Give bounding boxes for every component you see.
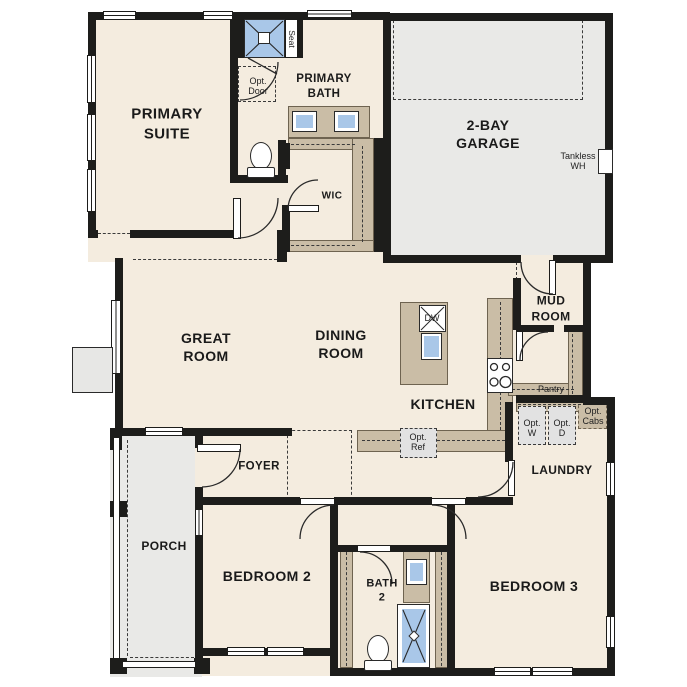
wall bbox=[386, 255, 613, 263]
annotation-dw: DW bbox=[425, 313, 440, 323]
tankless-water-heater bbox=[598, 149, 613, 174]
closet3-rod bbox=[441, 552, 442, 666]
window bbox=[145, 427, 183, 436]
wic-door-leaf bbox=[288, 205, 319, 212]
room-label-wic: WIC bbox=[322, 190, 343, 203]
toilet bbox=[250, 142, 272, 170]
window bbox=[606, 616, 615, 648]
room-label-primary-suite: PRIMARY SUITE bbox=[131, 105, 202, 144]
wall bbox=[374, 138, 383, 252]
window bbox=[227, 647, 265, 656]
porch-beam bbox=[122, 661, 196, 668]
wall bbox=[466, 497, 513, 505]
wall bbox=[607, 502, 615, 676]
toilet-tank bbox=[364, 660, 392, 671]
room-label-great-room: GREAT ROOM bbox=[181, 329, 231, 365]
toilet bbox=[367, 635, 389, 663]
window bbox=[606, 462, 615, 496]
window bbox=[203, 11, 233, 20]
closet2-rod bbox=[346, 552, 347, 666]
foyer-flex-outline bbox=[287, 430, 352, 500]
window bbox=[307, 10, 352, 18]
primary-hall-opening-line bbox=[133, 259, 277, 260]
floor-plan: PRIMARY SUITE PRIMARY BATH 2-BAY GARAGE … bbox=[0, 0, 687, 687]
room-label-bedroom3: BEDROOM 3 bbox=[490, 577, 578, 595]
room-label-garage: 2-BAY GARAGE bbox=[456, 116, 520, 152]
annotation-opt-cabs: Opt. Cabs bbox=[582, 406, 603, 426]
window bbox=[103, 11, 136, 20]
wall bbox=[282, 143, 290, 169]
sink bbox=[334, 111, 359, 132]
porch-beam bbox=[113, 437, 120, 659]
primary-door-leaf bbox=[233, 198, 241, 239]
primary-opening-line bbox=[98, 233, 130, 234]
wic-rod-top bbox=[291, 144, 355, 145]
window bbox=[494, 667, 531, 676]
annotation-seat: Seat bbox=[286, 30, 296, 48]
wall bbox=[583, 397, 615, 405]
wall bbox=[583, 255, 591, 405]
window bbox=[87, 55, 96, 103]
room-label-primary-bath: PRIMARY BATH bbox=[296, 72, 351, 102]
room-label-dining-room: DINING ROOM bbox=[315, 326, 366, 362]
annotation-tankless-wh: Tankless WH bbox=[560, 151, 595, 171]
fireplace bbox=[72, 347, 113, 393]
pantry-side-line bbox=[572, 334, 573, 394]
wall bbox=[386, 13, 613, 21]
window bbox=[195, 509, 203, 536]
room-label-kitchen: KITCHEN bbox=[410, 395, 475, 413]
annotation-opt-d: Opt. D bbox=[553, 418, 570, 438]
room-label-mud-room: MUD ROOM bbox=[532, 293, 571, 324]
primary-opening bbox=[98, 230, 130, 238]
kitchen-sink bbox=[421, 333, 442, 360]
room-label-pantry: Pantry bbox=[538, 384, 564, 394]
porch-edge-line bbox=[127, 440, 128, 656]
bedroom3-door-leaf bbox=[431, 498, 466, 505]
bath2-door-leaf bbox=[357, 545, 391, 552]
wall bbox=[516, 395, 583, 403]
window bbox=[267, 647, 304, 656]
wall bbox=[330, 505, 338, 648]
pantry-shelf-side bbox=[568, 330, 583, 396]
room-label-porch: PORCH bbox=[141, 539, 186, 555]
garage-door-outline bbox=[393, 20, 583, 100]
porch-edge-line2 bbox=[130, 657, 194, 658]
wall bbox=[447, 505, 455, 668]
wall bbox=[115, 428, 292, 436]
window bbox=[87, 169, 96, 212]
wall bbox=[334, 497, 432, 505]
room-label-bedroom2: BEDROOM 2 bbox=[223, 567, 311, 585]
wall bbox=[195, 497, 300, 505]
mudroom-door-leaf bbox=[549, 260, 556, 295]
bedroom2-door-leaf bbox=[300, 498, 335, 505]
bath2-sink bbox=[406, 559, 427, 585]
pantry-door-leaf bbox=[516, 331, 523, 361]
wic-rod-bottom bbox=[291, 245, 355, 246]
room-label-laundry: LAUNDRY bbox=[531, 463, 592, 479]
porch-floor bbox=[110, 433, 202, 677]
wall bbox=[605, 13, 613, 263]
wall bbox=[513, 278, 521, 330]
wic-rod-right bbox=[362, 146, 363, 242]
room-label-bath2: BATH 2 bbox=[366, 577, 397, 606]
toilet-tank bbox=[247, 167, 275, 178]
sink bbox=[292, 111, 317, 132]
window bbox=[532, 667, 573, 676]
cooktop bbox=[487, 358, 513, 393]
window bbox=[87, 114, 96, 161]
annotation-opt-door: Opt. Door bbox=[248, 76, 268, 96]
annotation-opt-w: Opt. W bbox=[523, 418, 540, 438]
wall bbox=[564, 325, 583, 332]
wall bbox=[277, 230, 287, 262]
laundry-door-leaf bbox=[508, 460, 515, 496]
front-door-opening bbox=[195, 448, 203, 487]
front-door-leaf bbox=[197, 444, 241, 452]
wic-shelf-right bbox=[352, 138, 374, 252]
porch-post bbox=[194, 658, 210, 674]
annotation-opt-ref: Opt. Ref bbox=[409, 432, 426, 452]
shower-drain bbox=[258, 32, 270, 44]
room-label-foyer: FOYER bbox=[238, 460, 280, 475]
wall bbox=[230, 52, 238, 182]
wall bbox=[383, 13, 391, 263]
wall bbox=[505, 402, 513, 462]
wall bbox=[390, 545, 447, 552]
wall bbox=[195, 648, 335, 656]
